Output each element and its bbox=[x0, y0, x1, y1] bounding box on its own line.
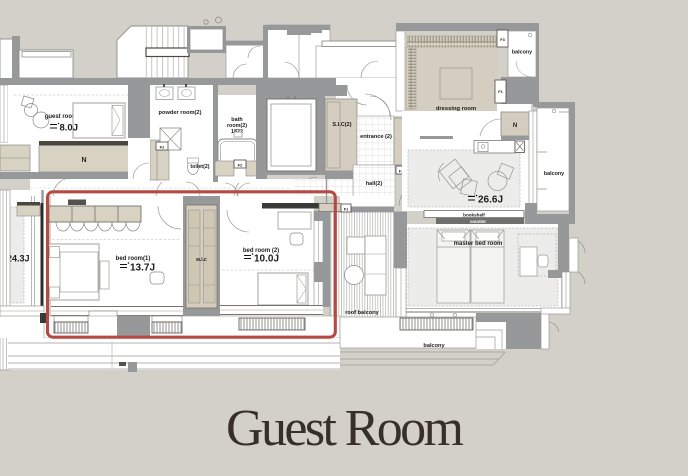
svg-text:N: N bbox=[81, 157, 86, 164]
svg-text:10.0J: 10.0J bbox=[254, 254, 279, 265]
svg-text:powder room(2): powder room(2) bbox=[159, 110, 202, 116]
svg-text:toilet(2): toilet(2) bbox=[190, 164, 209, 170]
svg-text:F1: F1 bbox=[344, 208, 348, 212]
svg-text:guest room: guest room bbox=[45, 114, 78, 120]
svg-text:26.6J: 26.6J bbox=[478, 195, 503, 206]
svg-text:13.7J: 13.7J bbox=[130, 263, 155, 274]
svg-text:entrance (2): entrance (2) bbox=[360, 134, 392, 140]
svg-text:8.0J: 8.0J bbox=[60, 123, 79, 134]
svg-text:F2: F2 bbox=[160, 145, 165, 150]
svg-text:S.I.C(2): S.I.C(2) bbox=[332, 122, 351, 128]
svg-text:balcony: balcony bbox=[423, 343, 445, 349]
svg-text:roof balcony: roof balcony bbox=[345, 310, 379, 316]
svg-text:balcony: balcony bbox=[544, 171, 564, 177]
svg-text:Guest Room: Guest Room bbox=[226, 400, 464, 457]
svg-text:w.i.c: w.i.c bbox=[195, 257, 207, 263]
svg-text:N: N bbox=[513, 123, 517, 129]
svg-text:balcony: balcony bbox=[512, 50, 532, 56]
svg-text:F3: F3 bbox=[500, 38, 504, 42]
svg-text:bed room(1): bed room(1) bbox=[116, 256, 151, 262]
svg-text:24.3J: 24.3J bbox=[7, 254, 30, 264]
svg-text:bookshelf: bookshelf bbox=[463, 213, 485, 218]
svg-text:F1: F1 bbox=[498, 90, 502, 94]
svg-text:counter: counter bbox=[470, 219, 486, 224]
svg-text:F2: F2 bbox=[238, 163, 243, 168]
svg-text:master bed room: master bed room bbox=[454, 241, 503, 247]
svg-text:hall(2): hall(2) bbox=[366, 181, 383, 187]
